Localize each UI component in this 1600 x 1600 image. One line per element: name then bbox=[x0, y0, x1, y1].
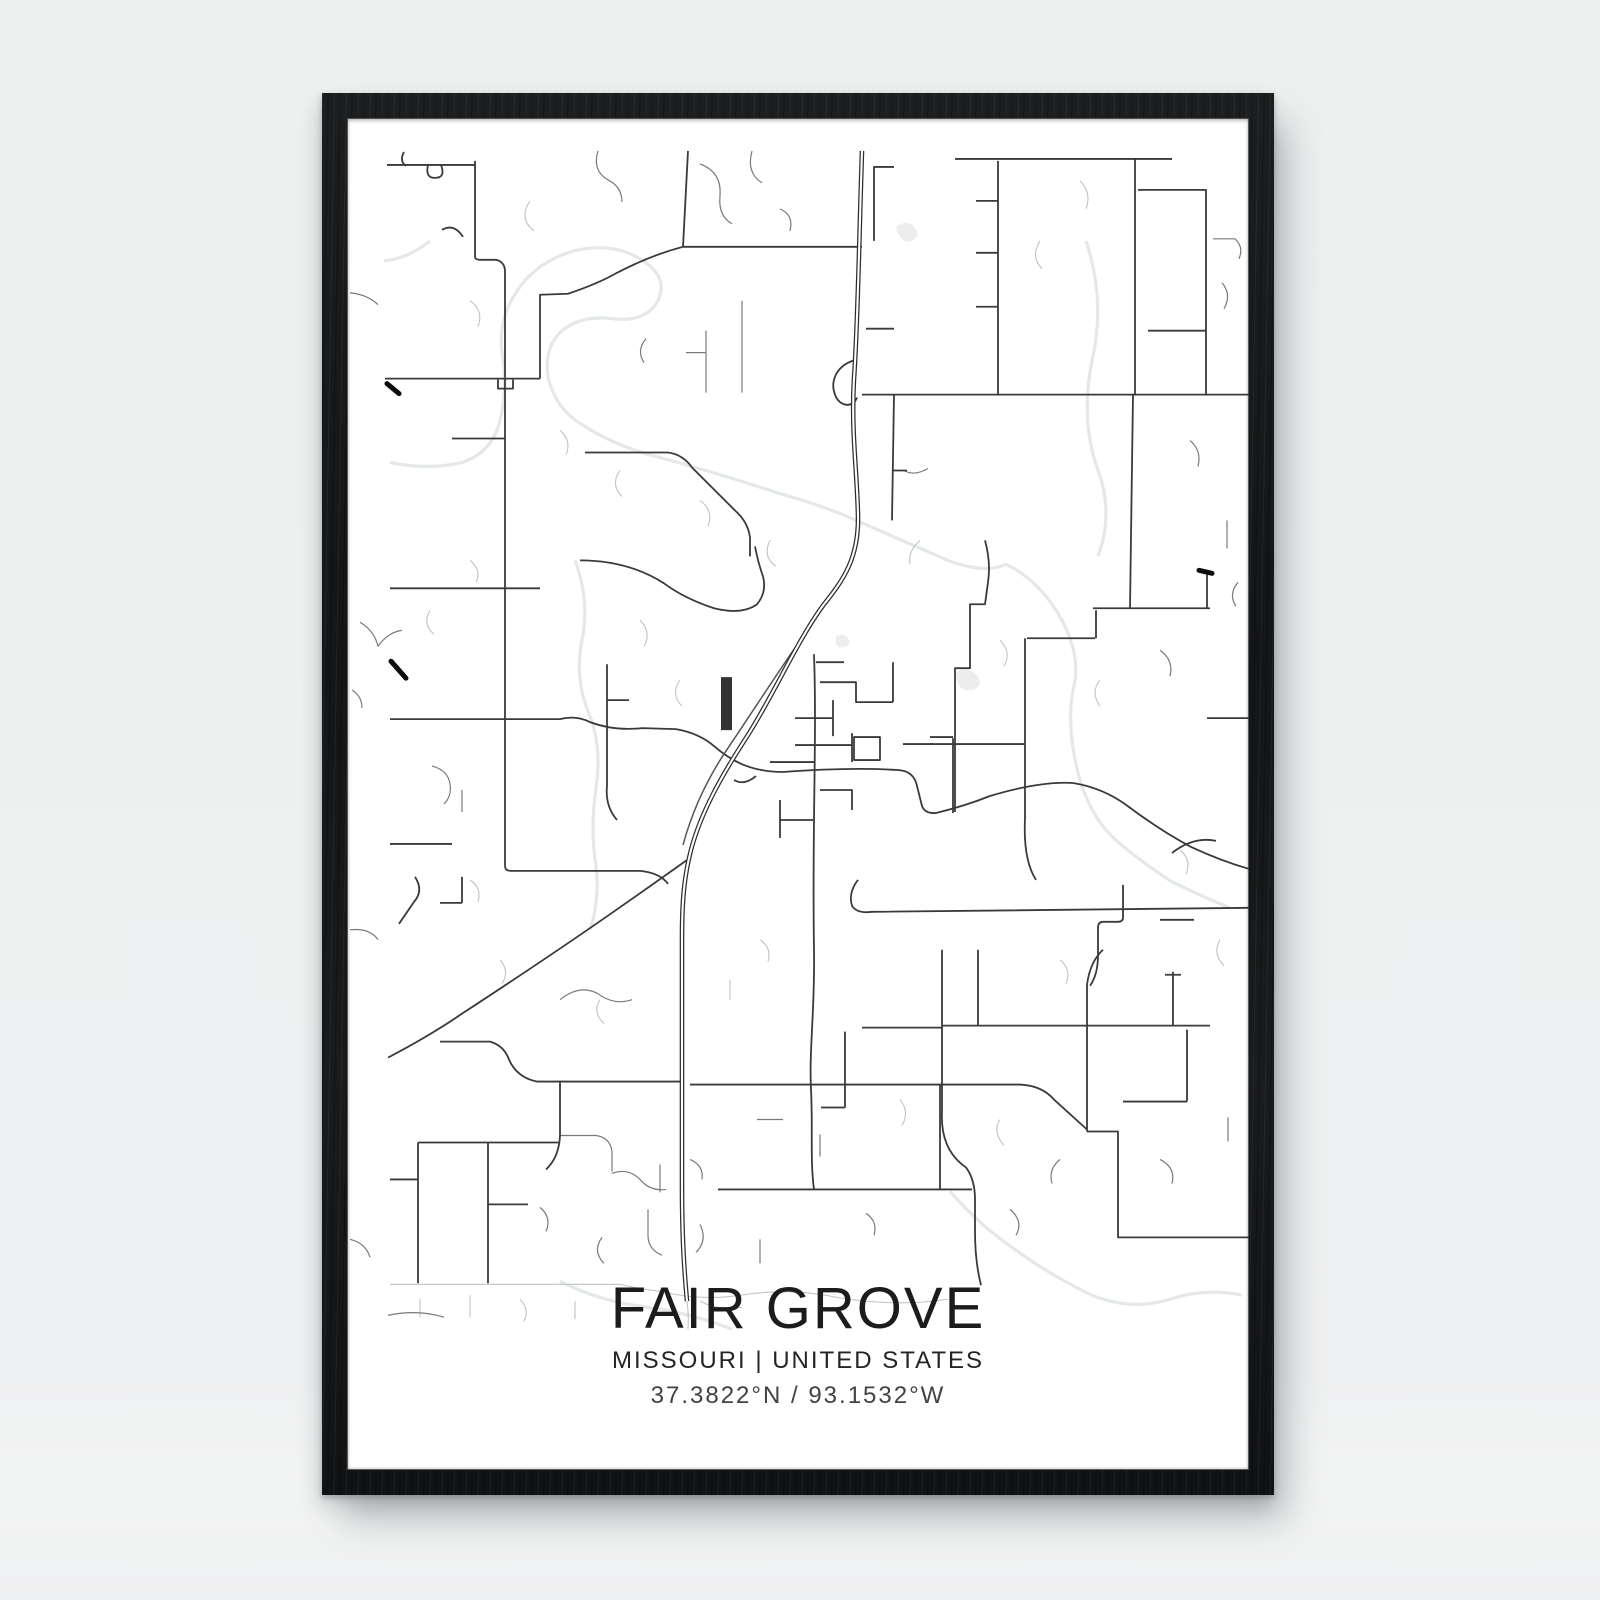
map-path-road-major bbox=[1138, 190, 1206, 395]
map-path-road-major bbox=[390, 1142, 560, 1283]
map-path-stream bbox=[384, 241, 430, 261]
map-path-road-minor bbox=[612, 1171, 666, 1255]
map-path-road-faint bbox=[730, 940, 769, 1000]
map-path-road-major bbox=[580, 546, 764, 611]
map-path-stream bbox=[1086, 241, 1106, 557]
map-path-road-major bbox=[892, 395, 907, 521]
map-path-road-major bbox=[816, 662, 893, 702]
map-path-bold-dash bbox=[387, 384, 399, 394]
map-path-road-faint bbox=[640, 620, 682, 706]
map-path-road-minor bbox=[560, 990, 632, 1002]
map-path-road-minor bbox=[760, 1213, 875, 1263]
map-path-road-faint bbox=[1035, 181, 1088, 269]
map-path-pond bbox=[836, 635, 850, 648]
map-path-road-minor bbox=[352, 690, 362, 708]
map-path-bold-dash bbox=[391, 661, 406, 678]
map-path-road-major bbox=[866, 167, 894, 329]
map-path-road-faint bbox=[1060, 960, 1068, 984]
map-path-road-major bbox=[442, 228, 463, 237]
map-path-road-minor bbox=[1222, 283, 1228, 309]
map-path-road-minor bbox=[350, 930, 378, 940]
map-path-road-minor bbox=[686, 301, 742, 393]
map-path-road-minor bbox=[640, 339, 646, 363]
map-path-road-minor bbox=[1190, 441, 1227, 549]
map-path-road-faint bbox=[1000, 640, 1100, 706]
map-path-bold-dash bbox=[1199, 570, 1212, 573]
map-path-road-major bbox=[783, 769, 1249, 869]
map-path-road-major bbox=[1090, 885, 1194, 986]
map-path-road-major bbox=[390, 844, 462, 924]
map-path-road-major bbox=[976, 161, 998, 395]
map-path-road-major bbox=[821, 1032, 845, 1108]
map-path-road-minor bbox=[1010, 1159, 1060, 1235]
map-path-road-major bbox=[1087, 1132, 1249, 1238]
map-path-road-faint bbox=[700, 500, 776, 566]
map-coordinates: 37.3822°N / 93.1532°W bbox=[347, 1384, 1249, 1408]
wall-background: FAIR GROVE MISSOURI | UNITED STATES 37.3… bbox=[0, 0, 1600, 1600]
map-path-road-major bbox=[1027, 608, 1210, 638]
map-path-road-minor bbox=[432, 766, 462, 812]
map-path-road-major bbox=[862, 1026, 1210, 1028]
map-path-road-minor bbox=[350, 293, 378, 305]
map-path-road-major bbox=[734, 744, 933, 838]
map-path-road-minor bbox=[1160, 582, 1238, 676]
map-subtitle: MISSOURI | UNITED STATES bbox=[347, 1349, 1249, 1373]
map-path-road-faint bbox=[470, 880, 479, 902]
map-path-road-faint bbox=[470, 301, 480, 327]
map-path-road-minor bbox=[560, 1135, 612, 1171]
map-path-road-major bbox=[1025, 638, 1036, 880]
map-path-road-major bbox=[683, 151, 688, 247]
map-path-filled-block bbox=[721, 677, 732, 730]
map-path-road-minor bbox=[690, 1159, 702, 1179]
map-path-road-minor bbox=[780, 209, 791, 231]
map-path-road-major bbox=[440, 1042, 537, 1082]
map-path-road-major bbox=[607, 664, 629, 820]
poster-frame: FAIR GROVE MISSOURI | UNITED STATES 37.3… bbox=[322, 93, 1274, 1495]
poster: FAIR GROVE MISSOURI | UNITED STATES 37.3… bbox=[347, 118, 1249, 1470]
map-path-highway-core bbox=[682, 151, 862, 1301]
map-path-road-minor bbox=[696, 1120, 820, 1253]
map-path-pond bbox=[956, 670, 980, 690]
map-path-road-major bbox=[942, 950, 981, 1286]
map-path-road-major bbox=[811, 654, 815, 1189]
map-path-road-major bbox=[585, 453, 750, 557]
map-path-road-faint bbox=[900, 1100, 1004, 1146]
map-path-road-minor bbox=[360, 622, 402, 646]
map-path-road-major bbox=[795, 700, 852, 762]
map-title: FAIR GROVE bbox=[347, 1280, 1249, 1338]
map-svg bbox=[347, 118, 1249, 1470]
map-path-stream bbox=[575, 560, 598, 929]
map-path-road-major bbox=[385, 379, 540, 389]
map-path-road-major bbox=[388, 858, 690, 1058]
map-path-road-major bbox=[387, 152, 475, 178]
map-path-road-major bbox=[540, 247, 683, 379]
map-path-road-major bbox=[851, 880, 1249, 912]
map-path-road-minor bbox=[700, 151, 762, 224]
map-path-stream bbox=[390, 248, 1230, 908]
map-path-road-minor bbox=[1160, 1118, 1228, 1184]
map-path-road-major bbox=[1172, 840, 1216, 853]
map-path-pond bbox=[896, 223, 918, 242]
map-path-road-major bbox=[546, 1082, 560, 1170]
map-path-highway-casing bbox=[682, 151, 862, 1301]
map-path-road-minor bbox=[904, 468, 928, 473]
map-path-road-faint bbox=[500, 960, 604, 1024]
map-path-road-major bbox=[940, 1085, 1087, 1130]
map-path-road-major bbox=[1165, 972, 1181, 1026]
map-path-road-major bbox=[1123, 1030, 1187, 1102]
map-path-road-faint bbox=[525, 201, 534, 231]
map-path-road-major bbox=[1130, 395, 1133, 609]
map-path-road-major bbox=[505, 866, 668, 884]
map-path-road-minor bbox=[1213, 239, 1241, 259]
map-path-road-faint bbox=[427, 560, 478, 634]
map-path-road-minor bbox=[596, 151, 622, 202]
map-path-road-minor bbox=[540, 1164, 660, 1263]
map-path-road-major bbox=[854, 737, 880, 760]
